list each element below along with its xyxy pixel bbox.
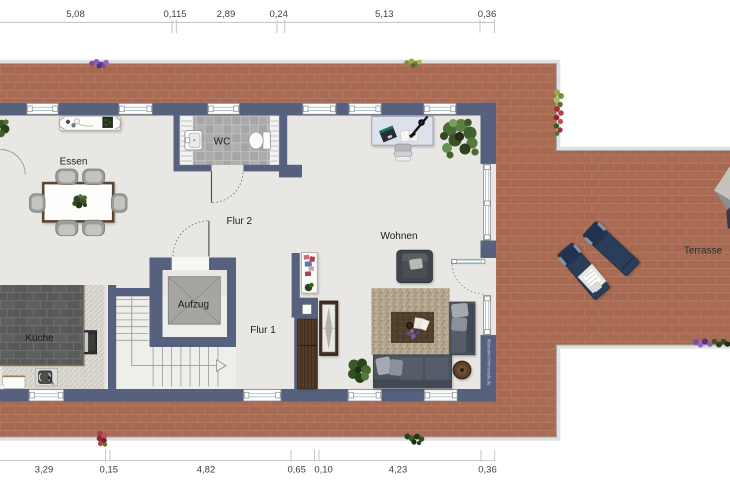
- svg-text:Essen: Essen: [60, 157, 88, 168]
- svg-text:0,36: 0,36: [478, 464, 497, 475]
- svg-text:2,89: 2,89: [217, 9, 236, 20]
- svg-text:Wohnen: Wohnen: [380, 231, 417, 242]
- svg-text:4,23: 4,23: [389, 464, 408, 475]
- svg-text:0,10: 0,10: [314, 464, 333, 475]
- svg-text:0,65: 0,65: [287, 464, 306, 475]
- svg-text:3,29: 3,29: [35, 464, 54, 475]
- svg-text:Flur 1: Flur 1: [250, 325, 276, 336]
- svg-text:Aufzug: Aufzug: [178, 300, 209, 311]
- svg-text:Flur 2: Flur 2: [227, 216, 253, 227]
- svg-text:0,115: 0,115: [163, 9, 186, 20]
- svg-text:Illustration©immostyle.de: Illustration©immostyle.de: [487, 339, 492, 387]
- svg-text:WC: WC: [214, 136, 231, 147]
- svg-text:Terrasse: Terrasse: [684, 245, 723, 256]
- svg-text:0,36: 0,36: [478, 9, 497, 20]
- svg-text:0,24: 0,24: [269, 9, 288, 20]
- svg-text:4,82: 4,82: [197, 464, 216, 475]
- svg-text:0,15: 0,15: [100, 464, 119, 475]
- svg-text:5,13: 5,13: [375, 9, 394, 20]
- svg-text:5,08: 5,08: [66, 9, 85, 20]
- svg-text:Küche: Küche: [25, 333, 54, 344]
